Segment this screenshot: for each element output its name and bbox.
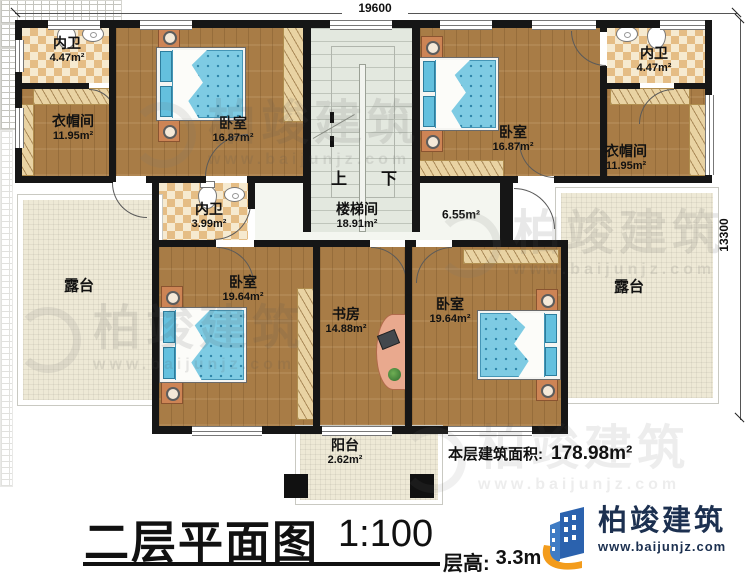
- nightstand: [536, 289, 558, 311]
- wall: [674, 83, 712, 89]
- bed-cushion: [545, 314, 557, 343]
- wall: [412, 20, 420, 232]
- wardrobe: [283, 26, 305, 122]
- room-label-bath-top-right: 内卫4.47m²: [637, 46, 672, 74]
- floor-height: 层高: 3.3m: [443, 547, 541, 576]
- title-underline: [83, 562, 440, 566]
- balcony-door-window: [322, 426, 392, 436]
- room-label-hallway-area: 6.55m²: [442, 208, 480, 221]
- wall: [152, 240, 216, 247]
- right-dimension-line: [740, 20, 741, 420]
- sink: [224, 187, 245, 202]
- bed-cushion: [160, 86, 172, 117]
- window: [15, 108, 24, 148]
- window: [705, 95, 714, 175]
- company-logo: 柏竣建筑 www.baijunjz.com: [538, 505, 726, 575]
- room-label-bedroom-bottom-left: 卧室19.64m²: [223, 275, 264, 303]
- window: [48, 20, 100, 30]
- wall: [152, 240, 159, 433]
- nightstand: [158, 120, 180, 142]
- room-label-cloak-right: 衣帽间11.95m²: [605, 144, 647, 172]
- nightstand: [421, 36, 443, 58]
- bed-cushion: [163, 311, 175, 343]
- company-name: 柏竣建筑: [598, 505, 726, 538]
- floor-area-summary: 本层建筑面积: 178.98m²: [448, 443, 632, 465]
- window: [15, 40, 24, 72]
- room-terrace-left: [18, 195, 162, 405]
- bed: [156, 47, 246, 121]
- wall: [247, 176, 310, 183]
- right-dimension-label: 13300: [717, 205, 731, 265]
- window: [330, 20, 392, 30]
- balcony-column: [284, 474, 308, 498]
- wall: [15, 83, 89, 89]
- room-label-bedroom-bottom-right: 卧室19.64m²: [430, 297, 471, 325]
- room-label-bath-top-left: 内卫4.47m²: [50, 36, 85, 64]
- wall: [254, 240, 370, 247]
- wall: [554, 176, 712, 183]
- wall: [452, 240, 568, 247]
- balcony-column: [410, 474, 434, 498]
- bed: [477, 310, 561, 380]
- room-label-study: 书房14.88m²: [326, 307, 367, 335]
- plan-scale: 1:100: [338, 513, 433, 556]
- bed-cushion: [545, 347, 557, 376]
- room-label-terrace-right: 露台: [614, 280, 644, 297]
- room-label-balcony: 阳台2.62m²: [328, 438, 363, 466]
- plant: [388, 368, 401, 381]
- room-label-stairwell: 楼梯间18.91m²: [336, 202, 378, 230]
- top-dimension-label: 19600: [342, 1, 408, 15]
- bed-cushion: [160, 51, 172, 82]
- room-label-terrace-left: 露台: [64, 279, 94, 296]
- room-label-cloak-left: 衣帽间11.95m²: [52, 114, 94, 142]
- company-logo-icon: [538, 505, 590, 575]
- window: [532, 20, 596, 30]
- bed-cushion: [163, 347, 175, 379]
- company-logo-text: 柏竣建筑 www.baijunjz.com: [598, 505, 726, 554]
- stair-break-mark: [330, 112, 334, 123]
- room-label-bath-middle: 内卫3.99m²: [192, 202, 227, 230]
- bed-cushion: [423, 96, 435, 127]
- floor-height-value: 3.3m: [496, 547, 542, 576]
- wall: [303, 20, 311, 232]
- floor-plan-page: { "dimensions": {"top": "19600", "right"…: [0, 0, 750, 580]
- wall: [561, 240, 568, 433]
- stairs-up-label: 上: [331, 165, 347, 189]
- wardrobe: [416, 160, 504, 177]
- wall: [109, 20, 116, 182]
- wall: [405, 240, 412, 433]
- floor-height-label: 层高:: [443, 547, 490, 576]
- window: [192, 426, 262, 436]
- company-website: www.baijunjz.com: [598, 539, 726, 554]
- side-railing: [0, 130, 13, 487]
- window: [140, 20, 192, 30]
- nightstand: [161, 286, 183, 308]
- floor-area-value: 178.98m²: [551, 443, 632, 465]
- window: [448, 426, 532, 436]
- wall: [607, 83, 640, 89]
- bed: [159, 307, 247, 383]
- door-arc: [514, 188, 555, 229]
- wall: [313, 240, 320, 433]
- wall: [500, 176, 513, 247]
- wall: [248, 176, 255, 209]
- stair-break-mark: [330, 136, 334, 147]
- nightstand: [536, 379, 558, 401]
- floor-area-label: 本层建筑面积:: [448, 443, 543, 464]
- bed: [419, 57, 499, 131]
- bed-cushion: [423, 61, 435, 92]
- window: [440, 20, 492, 30]
- window: [660, 20, 705, 30]
- wall: [15, 176, 113, 183]
- sink: [616, 26, 638, 42]
- nightstand: [421, 130, 443, 152]
- room-label-bedroom-top-right: 卧室16.87m²: [493, 125, 534, 153]
- wall: [600, 20, 607, 32]
- nightstand: [161, 382, 183, 404]
- wall: [152, 176, 159, 247]
- wardrobe: [463, 249, 559, 264]
- room-label-bedroom-top-left: 卧室16.87m²: [213, 116, 254, 144]
- stairs-down-label: 下: [381, 165, 397, 189]
